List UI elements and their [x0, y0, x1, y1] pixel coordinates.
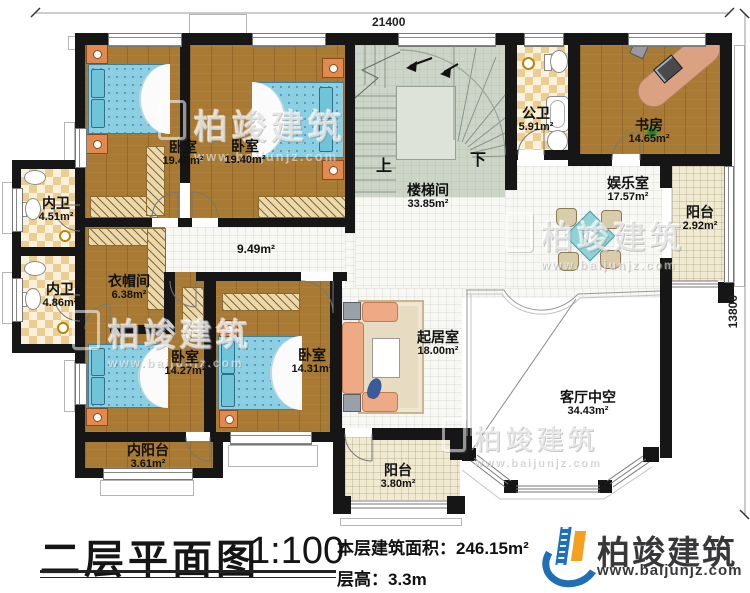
floor-plan: 柏竣建筑 www.baijunjz.com 柏竣建筑 www.baijunjz.…	[0, 0, 750, 593]
room-label-closet: 衣帽间6.38m²	[108, 274, 150, 301]
stair-up-label: 上	[376, 152, 392, 176]
room-label-bedroom-4: 卧室14.31m²	[292, 348, 333, 375]
baijun-logo-icon	[542, 527, 594, 582]
room-label-inner-balcony: 内阳台3.61m²	[127, 443, 169, 470]
title-underline	[40, 577, 336, 578]
room-label-balcony-south: 阳台3.80m²	[381, 463, 416, 490]
room-label-balcony-east: 阳台2.92m²	[683, 205, 718, 232]
room-label-bath-1: 内卫4.51m²	[39, 196, 74, 223]
room-label-sitting-room: 起居室18.00m²	[417, 330, 459, 357]
room-label-living-void: 客厅中空34.43m²	[560, 390, 616, 417]
room-label-bedroom-3: 卧室14.27m²	[165, 350, 206, 377]
room-label-stairwell: 楼梯间33.85m²	[407, 183, 449, 210]
room-label-rec-room: 娱乐室17.57m²	[607, 176, 649, 203]
dimension-height: 13800	[726, 295, 740, 328]
floor-area-line: 本层建筑面积：246.15m²	[337, 534, 529, 559]
room-label-public-bath: 公卫5.91m²	[519, 106, 554, 133]
stair-down-label: 下	[470, 146, 486, 170]
floor-height-line: 层高：3.3m	[337, 565, 427, 590]
room-label-bedroom-2: 卧室19.40m²	[225, 139, 266, 166]
brand-website: www.baijunjz.com	[597, 562, 742, 579]
room-label-bedroom-1: 卧室19.40m²	[163, 140, 204, 167]
plan-scale: 1:100	[249, 530, 344, 573]
corridor-area-label: 9.49m²	[237, 243, 275, 255]
room-label-study: 书房14.65m²	[629, 118, 670, 145]
dimension-width: 21400	[372, 15, 405, 29]
title-underline	[40, 570, 336, 573]
room-label-bath-2: 内卫4.86m²	[43, 282, 78, 309]
